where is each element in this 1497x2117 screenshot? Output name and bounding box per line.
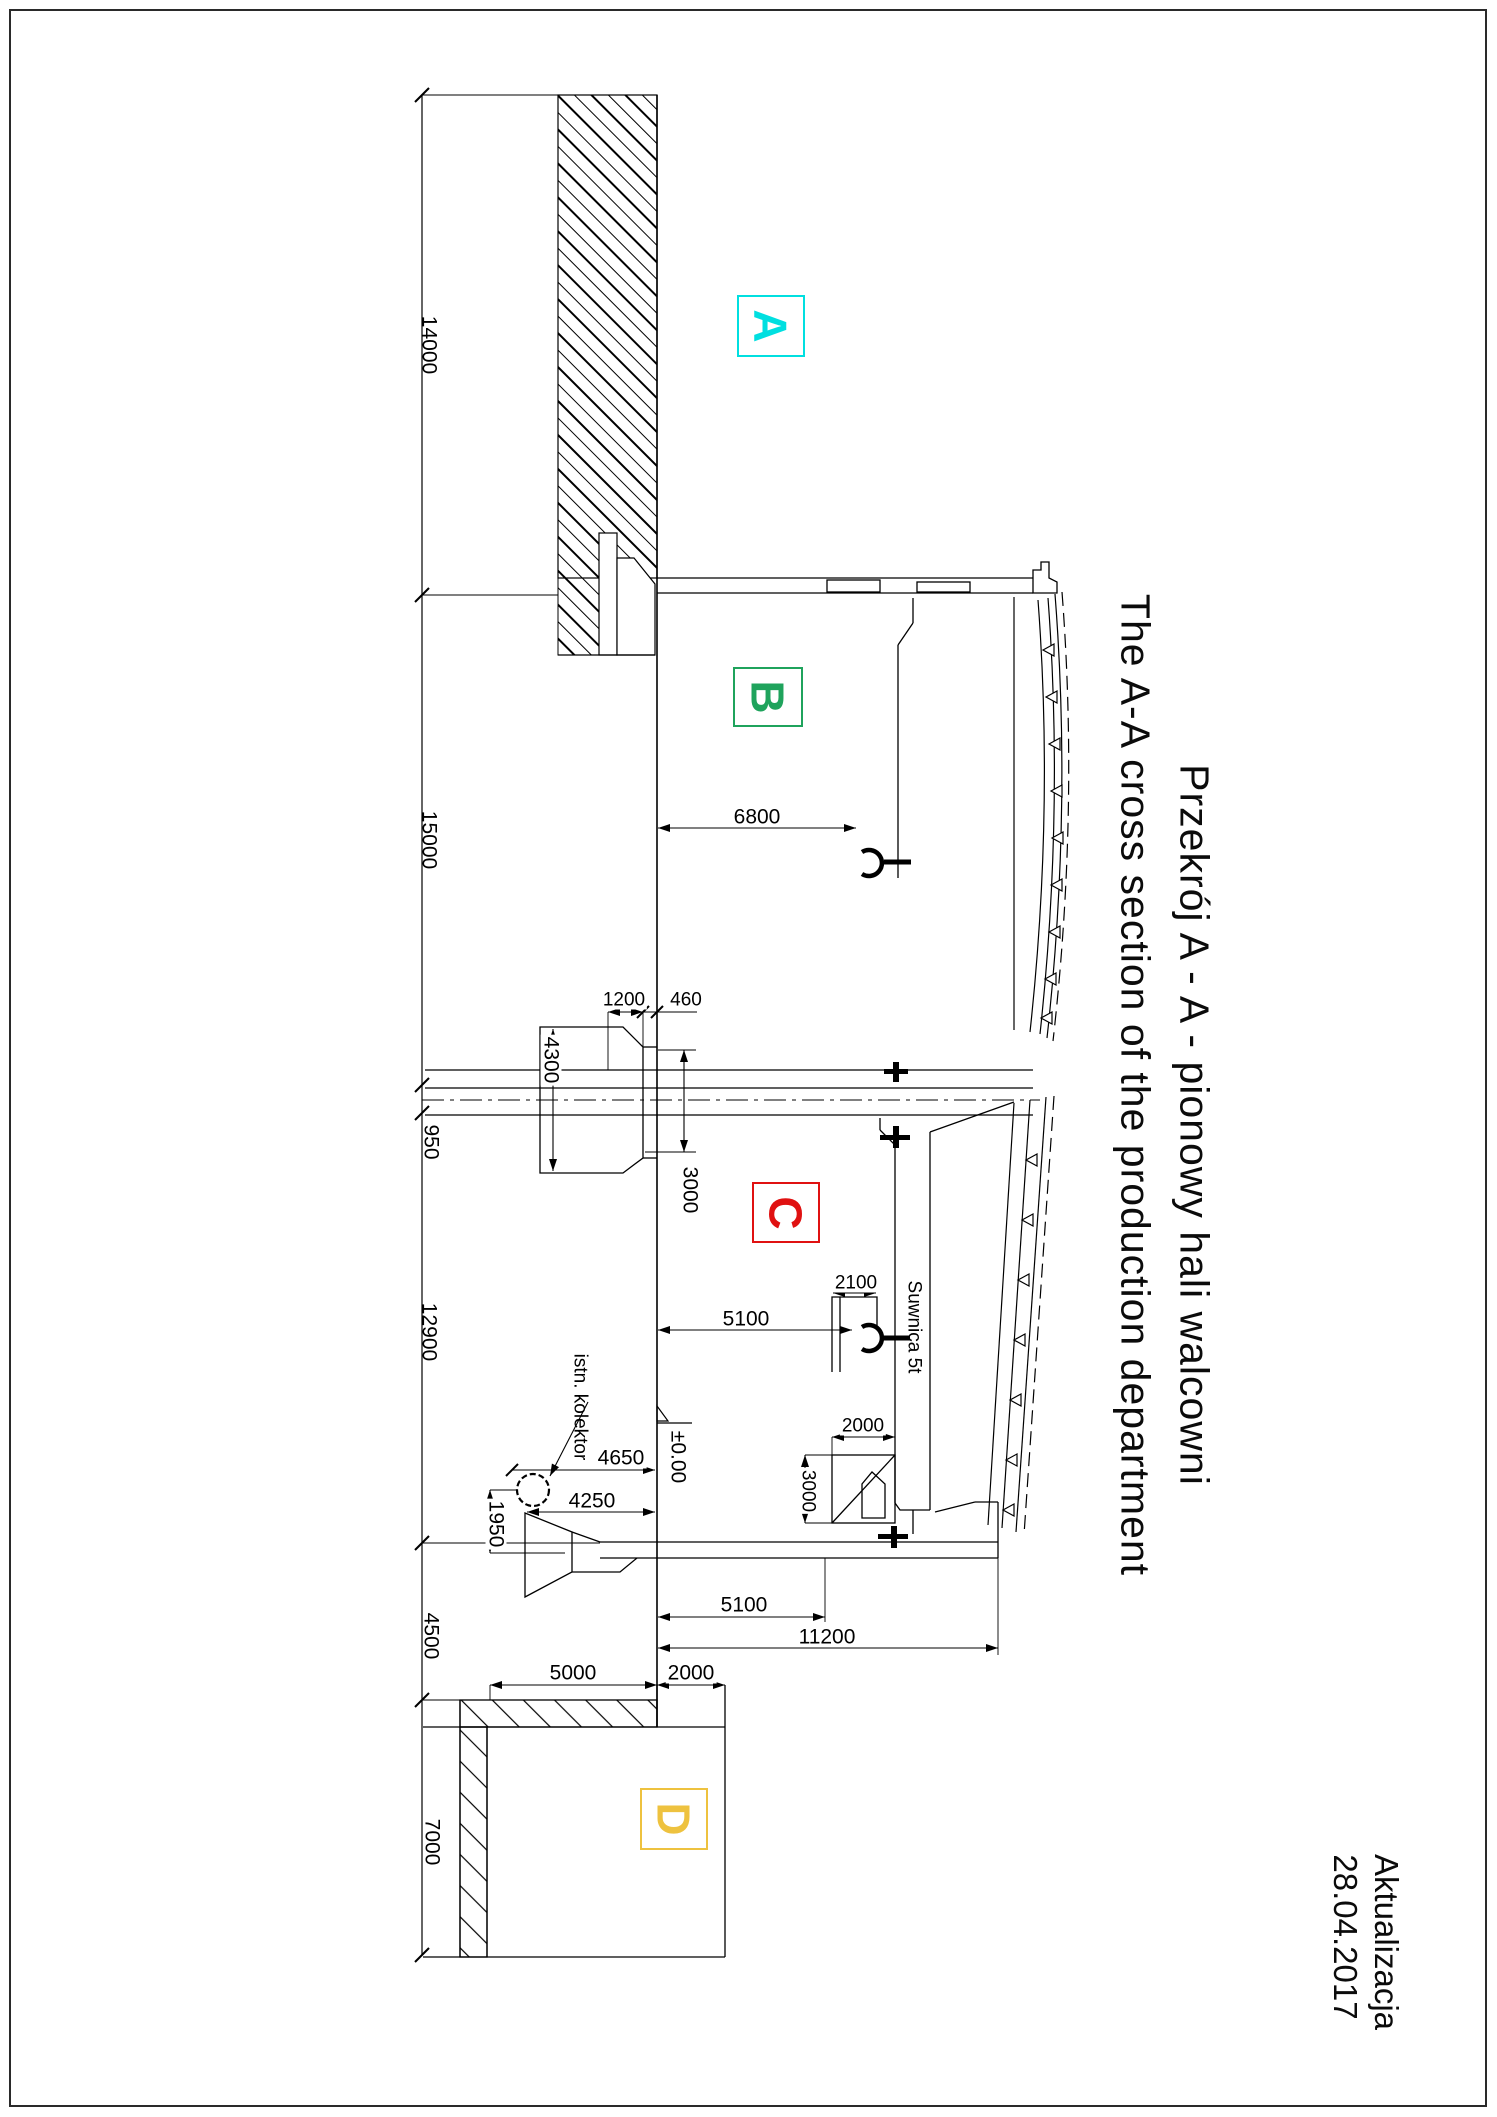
dim-4500: 4500 <box>421 1611 442 1662</box>
collector-note: istn. kolektor <box>571 1352 590 1463</box>
zone-label-c: C <box>752 1182 820 1243</box>
dim-3000-machine: 3000 <box>799 1468 818 1514</box>
bay-c-hook-bracket <box>658 1293 910 1372</box>
bay-b-crane-bracket <box>862 598 913 878</box>
crane-note: Suwnica 5t <box>905 1279 924 1376</box>
middle-column-head <box>540 1006 697 1173</box>
dim-15000: 15000 <box>419 809 440 871</box>
dim-2100: 2100 <box>833 1274 879 1293</box>
revision-label: Aktualizacja <box>1367 1854 1405 2030</box>
dim-6800: 6800 <box>732 807 783 828</box>
dim-11200: 11200 <box>797 1627 858 1648</box>
zone-label-d: D <box>640 1788 708 1850</box>
dim-4650: 4650 <box>596 1448 647 1469</box>
title-polish: Przekrój A - A - pionowy hali walcowni <box>1171 764 1218 1486</box>
zone-label-a: A <box>737 295 805 357</box>
dim-1200: 1200 <box>601 991 647 1010</box>
bay-c-truss <box>988 1096 1054 1535</box>
zone-label-b: B <box>733 667 803 727</box>
revision-date: 28.04.2017 <box>1326 1854 1364 2019</box>
dim-950: 950 <box>421 1122 442 1161</box>
zone-letter-a: A <box>748 309 794 342</box>
dim-14000: 14000 <box>419 314 440 376</box>
dim-4300: 4300 <box>541 1035 562 1086</box>
dim-2000-d: 2000 <box>666 1663 717 1684</box>
dim-5100-floor: 5100 <box>719 1595 770 1616</box>
dim-1950: 1950 <box>486 1499 507 1550</box>
wall-a-hatched <box>558 95 657 655</box>
title-english: The A-A cross section of the production … <box>1112 594 1159 1576</box>
dim-12900: 12900 <box>419 1301 440 1363</box>
dim-3000-column: 3000 <box>680 1165 701 1216</box>
dim-4250: 4250 <box>567 1491 618 1512</box>
dim-7000: 7000 <box>422 1817 443 1868</box>
bay-b-roof <box>657 562 1057 593</box>
bay-b-truss <box>1014 592 1069 1041</box>
dim-5100-hook: 5100 <box>721 1309 772 1330</box>
dim-5000: 5000 <box>548 1663 599 1684</box>
dim-460: 460 <box>668 991 704 1010</box>
bay-c-crane-beam <box>880 1102 1014 1534</box>
dim-2000-machine: 2000 <box>840 1417 886 1436</box>
drawing-sheet: A B C D 14000 15000 950 12900 4500 7000 … <box>0 0 1497 2117</box>
elevation-marker <box>657 1406 692 1423</box>
zone-letter-b: B <box>745 680 791 713</box>
machine-box <box>805 1437 895 1523</box>
level-note: ±0.00 <box>668 1429 689 1485</box>
crane-rails <box>422 1062 1040 1548</box>
zone-letter-c: C <box>763 1196 809 1229</box>
zone-letter-d: D <box>651 1802 697 1835</box>
